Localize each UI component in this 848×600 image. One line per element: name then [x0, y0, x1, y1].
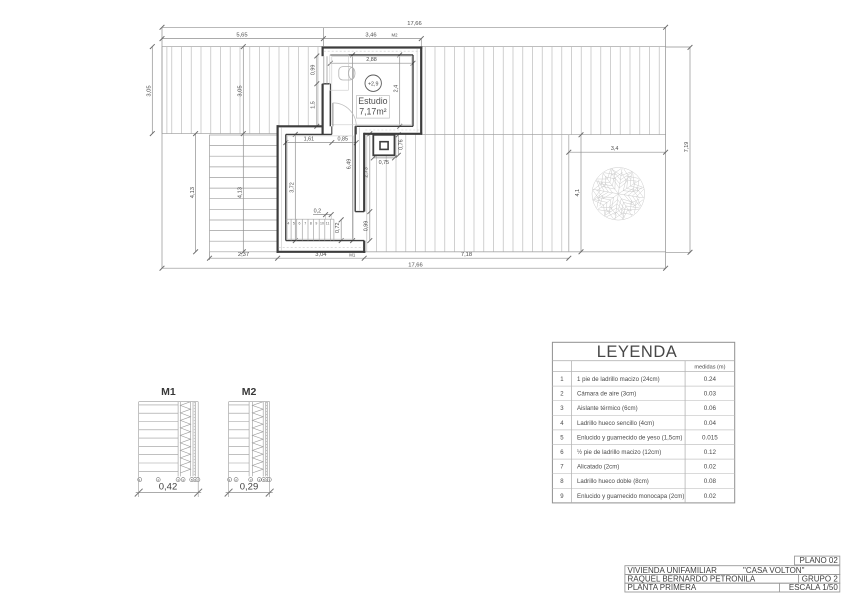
svg-text:3,72: 3,72: [289, 182, 295, 193]
svg-text:0.04: 0.04: [704, 420, 717, 427]
svg-text:GRUPO 2: GRUPO 2: [802, 575, 839, 584]
svg-text:1 pie de ladrillo macizo (24cm: 1 pie de ladrillo macizo (24cm): [577, 376, 660, 383]
svg-text:6,49: 6,49: [346, 159, 352, 170]
svg-text:3,46: 3,46: [365, 33, 376, 39]
svg-text:Aislante térmico (6cm): Aislante térmico (6cm): [577, 405, 638, 412]
svg-text:1,5: 1,5: [311, 101, 317, 109]
svg-text:3,05: 3,05: [238, 85, 244, 96]
svg-text:5: 5: [293, 221, 295, 225]
svg-text:PLANTA PRIMERA: PLANTA PRIMERA: [628, 583, 697, 592]
svg-text:3,04: 3,04: [315, 252, 327, 258]
svg-text:+2,9: +2,9: [368, 81, 379, 87]
svg-text:7,18: 7,18: [461, 252, 472, 258]
svg-text:7: 7: [304, 221, 306, 225]
svg-text:Enlucido y guarnecido de yeso: Enlucido y guarnecido de yeso (1,5cm): [577, 434, 682, 441]
svg-text:0.015: 0.015: [702, 434, 718, 441]
svg-text:0.12: 0.12: [704, 449, 717, 456]
svg-text:PLANO 02: PLANO 02: [800, 556, 839, 565]
svg-text:M1: M1: [349, 252, 356, 257]
svg-text:0,72: 0,72: [335, 223, 341, 234]
svg-text:Ladrillo hueco sencillo (4cm): Ladrillo hueco sencillo (4cm): [577, 420, 654, 427]
svg-text:medidas (m): medidas (m): [694, 365, 725, 371]
svg-text:LEYENDA: LEYENDA: [597, 343, 678, 361]
svg-text:0.24: 0.24: [704, 376, 717, 383]
svg-text:7,17m²: 7,17m²: [359, 107, 386, 117]
svg-text:0,42: 0,42: [159, 481, 178, 492]
svg-text:M2: M2: [242, 386, 257, 398]
svg-text:0.02: 0.02: [704, 493, 717, 500]
svg-text:"CASA VOLTON": "CASA VOLTON": [743, 566, 805, 575]
svg-text:RAQUEL BERNARDO PETRONILA: RAQUEL BERNARDO PETRONILA: [628, 575, 756, 584]
svg-text:6: 6: [299, 221, 301, 225]
svg-text:10: 10: [320, 221, 324, 225]
svg-text:4: 4: [287, 221, 289, 225]
svg-text:4,13: 4,13: [238, 187, 244, 198]
svg-text:17,66: 17,66: [407, 21, 422, 27]
svg-text:M1: M1: [161, 386, 176, 398]
svg-text:3,4: 3,4: [611, 146, 619, 152]
svg-text:Cámara de aire (3cm): Cámara de aire (3cm): [577, 391, 636, 398]
svg-text:0.02: 0.02: [704, 464, 717, 471]
svg-text:VIVIENDA UNIFAMILIAR: VIVIENDA UNIFAMILIAR: [628, 566, 718, 575]
svg-text:11: 11: [326, 221, 330, 225]
svg-text:4,1: 4,1: [575, 189, 581, 197]
svg-text:1,61: 1,61: [304, 136, 315, 142]
svg-text:0.08: 0.08: [704, 478, 717, 485]
svg-text:7,19: 7,19: [684, 142, 690, 153]
svg-text:0,99: 0,99: [364, 221, 370, 232]
svg-text:M2: M2: [392, 32, 399, 37]
svg-text:Ladrillo hueco doble (8cm): Ladrillo hueco doble (8cm): [577, 478, 649, 485]
svg-text:½ pie de ladrillo macizo (12cm: ½ pie de ladrillo macizo (12cm): [577, 449, 661, 456]
svg-text:8: 8: [310, 221, 312, 225]
svg-text:0,29: 0,29: [240, 481, 259, 492]
svg-text:0,2: 0,2: [314, 209, 322, 215]
svg-text:ESCALA 1/50: ESCALA 1/50: [789, 583, 838, 592]
svg-text:0,75: 0,75: [379, 160, 390, 166]
svg-text:9: 9: [315, 221, 317, 225]
svg-text:0.03: 0.03: [704, 391, 717, 398]
svg-text:2,37: 2,37: [238, 252, 249, 258]
svg-text:0,85: 0,85: [338, 136, 349, 142]
svg-text:0.06: 0.06: [704, 405, 717, 412]
svg-text:3,05: 3,05: [147, 85, 153, 96]
svg-text:2,4: 2,4: [393, 85, 399, 93]
svg-text:0,76: 0,76: [399, 139, 405, 150]
svg-text:2,88: 2,88: [366, 57, 377, 63]
svg-text:Alicatado (2cm): Alicatado (2cm): [577, 464, 619, 471]
svg-text:4,13: 4,13: [190, 187, 196, 198]
svg-text:Enlucido y guarnecido monocapa: Enlucido y guarnecido monocapa (2cm): [577, 493, 684, 500]
svg-text:Estudio: Estudio: [358, 96, 387, 106]
svg-text:0,99: 0,99: [311, 65, 317, 76]
svg-text:5,65: 5,65: [236, 33, 247, 39]
svg-text:17,66: 17,66: [408, 262, 423, 268]
